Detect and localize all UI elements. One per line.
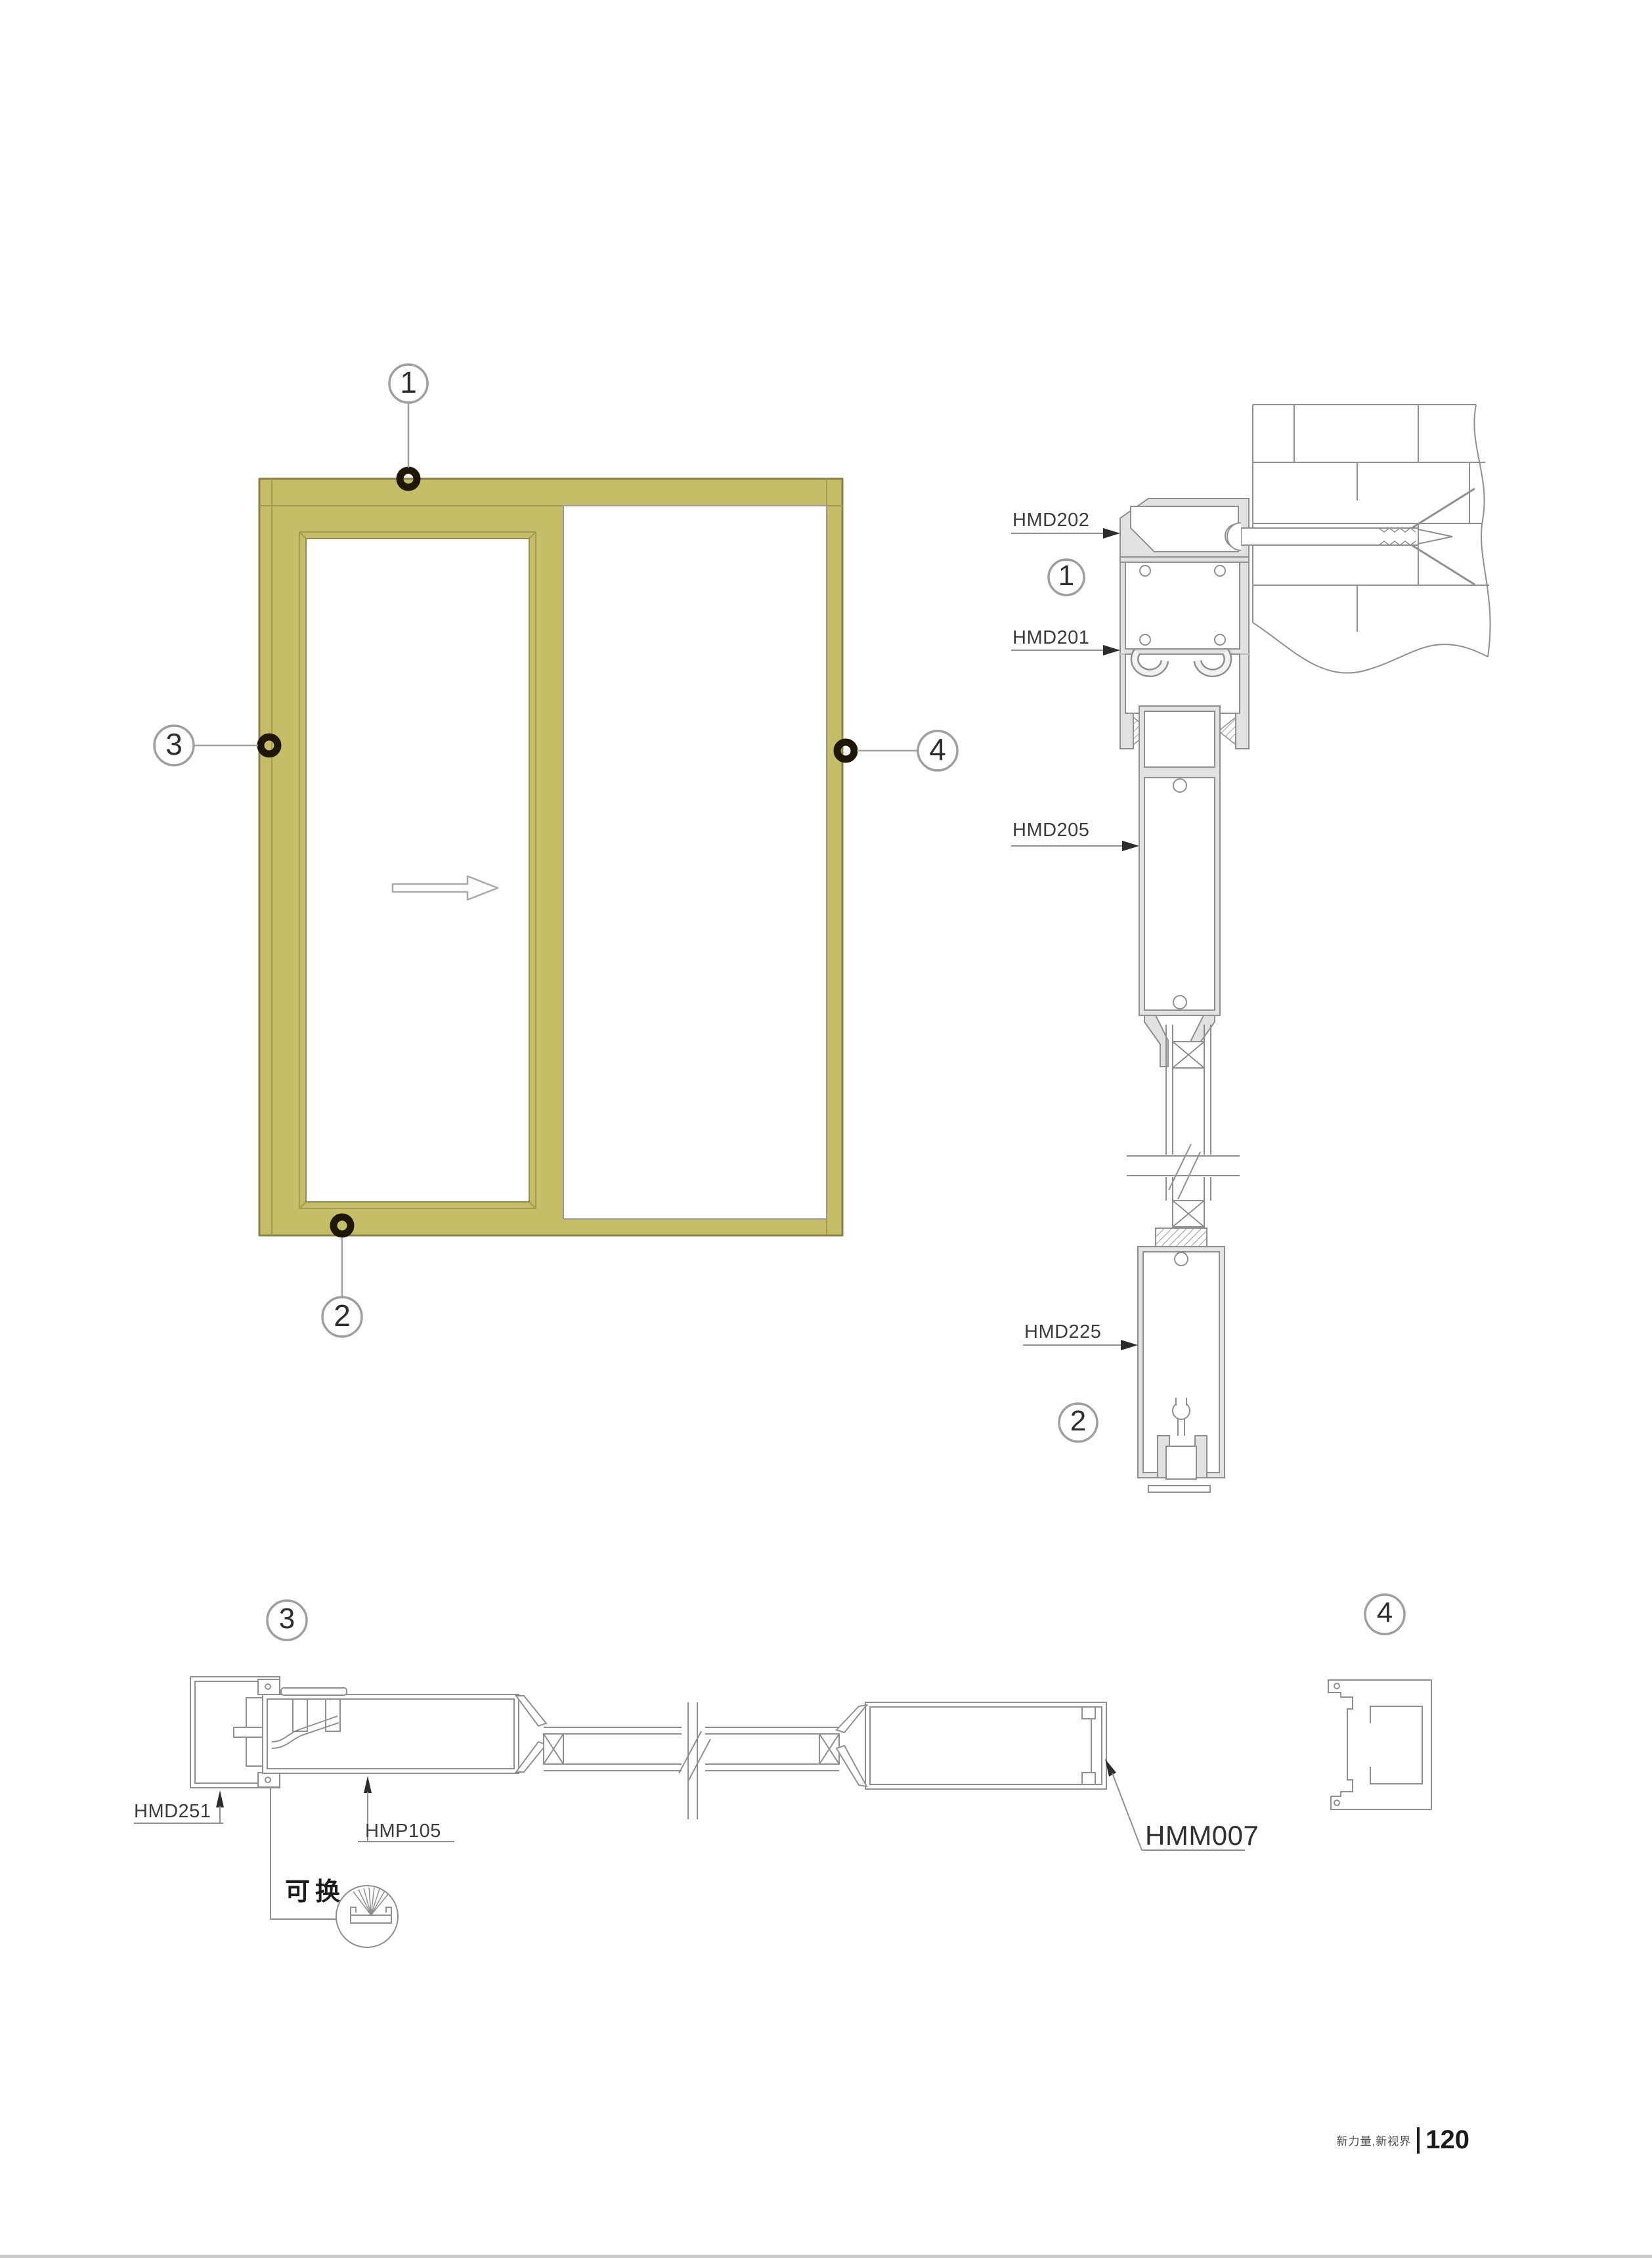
fixed-panel-stile bbox=[837, 1702, 1106, 1789]
replaceable-note: 可换 bbox=[285, 1880, 345, 1905]
horizontal-section-callout-circles bbox=[267, 1595, 1404, 1640]
latch-keeper bbox=[234, 1727, 264, 1737]
label-hmm007: HMM007 bbox=[1145, 1822, 1259, 1849]
roller bbox=[1166, 1446, 1196, 1479]
elevation-view bbox=[154, 365, 957, 1337]
callout-number-3: 3 bbox=[165, 729, 183, 759]
section-callout-number-4: 4 bbox=[1377, 1599, 1393, 1627]
page-footer: 新力量,新视界 120 bbox=[1337, 2125, 1469, 2155]
brush-seal-right bbox=[1219, 717, 1236, 745]
profile-hmd225 bbox=[1138, 1247, 1225, 1492]
glazing-and-glass bbox=[1127, 1015, 1240, 1247]
fixed-panel-glass bbox=[563, 506, 827, 1219]
label-hmd251: HMD251 bbox=[134, 1802, 211, 1821]
marker-4-icon bbox=[837, 742, 854, 759]
track-plate bbox=[1148, 1486, 1210, 1492]
callout-number-1: 1 bbox=[400, 367, 417, 397]
setting-block bbox=[1156, 1228, 1207, 1247]
label-hmd225: HMD225 bbox=[1024, 1323, 1101, 1342]
footer-divider bbox=[1417, 2127, 1420, 2154]
profile-hmp105 bbox=[263, 1688, 546, 1773]
section-callout-number-1: 1 bbox=[1058, 562, 1074, 590]
technical-drawing-canvas bbox=[0, 0, 1652, 2258]
label-hmd202: HMD202 bbox=[1012, 511, 1089, 530]
glass-run bbox=[544, 1702, 839, 1819]
section-callout-number-3: 3 bbox=[279, 1605, 295, 1633]
label-hmp105: HMP105 bbox=[365, 1822, 441, 1841]
profile-hmd205 bbox=[1139, 706, 1220, 1015]
brush-seal-detail bbox=[271, 1788, 398, 1947]
callout-number-2: 2 bbox=[334, 1300, 351, 1331]
section-callout-number-2: 2 bbox=[1070, 1407, 1086, 1436]
profile-channel-jamb bbox=[1328, 1680, 1431, 1809]
catalog-page: HMD202 HMD201 HMD205 HMD225 HMD251 HMP10… bbox=[0, 0, 1652, 2258]
expansion-anchor-bolt bbox=[1227, 489, 1475, 585]
vertical-section-callout-circles bbox=[1049, 560, 1097, 1442]
callout-number-4: 4 bbox=[929, 734, 946, 764]
page-bottom-edge bbox=[0, 2255, 1652, 2258]
footer-slogan: 新力量,新视界 bbox=[1337, 2132, 1412, 2148]
sliding-panel-glass bbox=[306, 539, 529, 1202]
label-hmd201: HMD201 bbox=[1012, 629, 1089, 648]
label-hmd205: HMD205 bbox=[1012, 821, 1089, 840]
footer-page-number: 120 bbox=[1425, 2125, 1469, 2155]
